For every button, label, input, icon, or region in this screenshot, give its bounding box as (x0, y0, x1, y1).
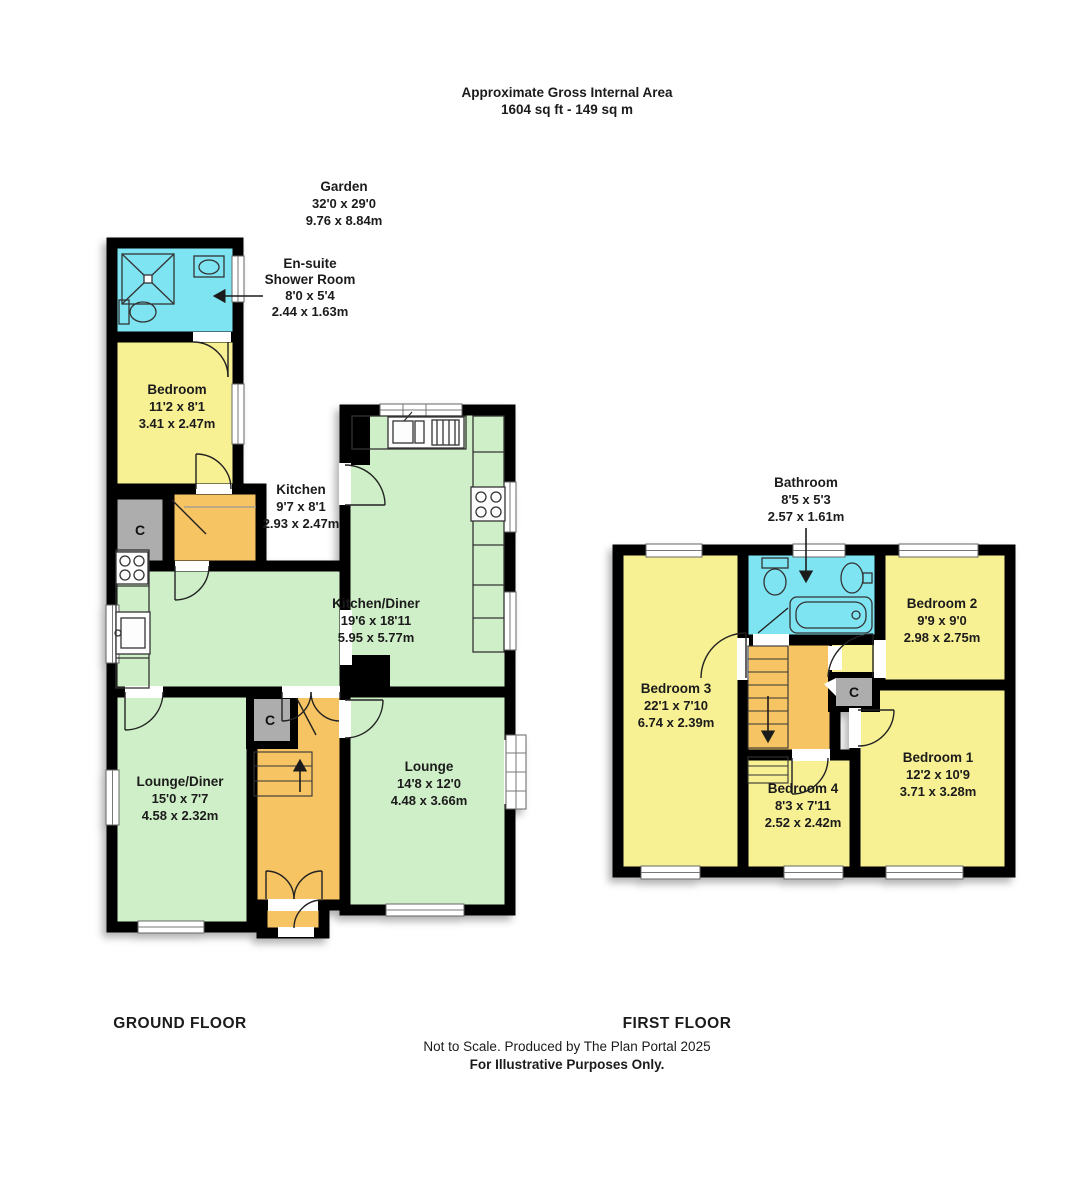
room-name: Lounge (405, 759, 454, 774)
room-name: Bedroom 3 (641, 681, 712, 696)
room-metric: 3.41 x 2.47m (139, 416, 216, 431)
window-icon (793, 544, 845, 557)
garden-label: Garden 32'0 x 29'0 9.76 x 8.84m (306, 179, 383, 228)
room-name: Bathroom (774, 475, 838, 490)
room-metric: 2.57 x 1.61m (768, 509, 845, 524)
room-name: Kitchen/Diner (332, 596, 421, 611)
floorplan-page: Approximate Gross Internal Area 1604 sq … (0, 0, 1089, 1200)
hall-gf (169, 489, 261, 566)
garden-imperial: 32'0 x 29'0 (312, 196, 376, 211)
disclaimer-line1: Not to Scale. Produced by The Plan Porta… (423, 1039, 710, 1054)
room-name: Bedroom 4 (768, 781, 839, 796)
bedroom-gf-label: Bedroom 11'2 x 8'1 3.41 x 2.47m (139, 382, 216, 431)
room-imperial: 19'6 x 18'11 (341, 613, 412, 628)
window-icon (106, 770, 119, 825)
room-imperial: 11'2 x 8'1 (149, 399, 205, 414)
bedroom1-label: Bedroom 1 12'2 x 10'9 3.71 x 3.28m (900, 750, 977, 799)
room-metric: 3.71 x 3.28m (900, 784, 977, 799)
room-imperial: 9'9 x 9'0 (917, 613, 967, 628)
room-name: Bedroom (147, 382, 206, 397)
bay-window-icon (504, 735, 526, 809)
room-name: Kitchen (276, 482, 326, 497)
window-icon (641, 866, 700, 879)
room-metric: 2.93 x 2.47m (263, 516, 340, 531)
window-icon (784, 866, 843, 879)
room-metric: 2.52 x 2.42m (765, 815, 842, 830)
window-icon (899, 544, 978, 557)
room-imperial: 14'8 x 12'0 (397, 776, 461, 791)
first-floor-title: FIRST FLOOR (623, 1015, 732, 1032)
sink-unit-icon (388, 412, 464, 448)
bedroom3-label: Bedroom 3 22'1 x 7'10 6.74 x 2.39m (638, 681, 715, 730)
window-icon (886, 866, 963, 879)
cupboard-label: C (849, 684, 859, 700)
room-imperial: 8'0 x 5'4 (285, 288, 335, 303)
room-metric: 2.44 x 1.63m (272, 304, 349, 319)
page-title-line1: Approximate Gross Internal Area (461, 85, 673, 100)
garden-name: Garden (320, 179, 367, 194)
room-imperial: 8'3 x 7'11 (775, 798, 831, 813)
room-ensuite (112, 243, 238, 337)
window-icon (386, 904, 464, 916)
room-imperial: 15'0 x 7'7 (152, 791, 209, 806)
window-icon (646, 544, 702, 557)
room-name: Bedroom 1 (903, 750, 974, 765)
room-imperial: 12'2 x 10'9 (906, 767, 970, 782)
hob-icon (471, 487, 505, 521)
window-icon (138, 921, 204, 933)
window-icon (232, 256, 244, 302)
bedroom4-label: Bedroom 4 8'3 x 7'11 2.52 x 2.42m (765, 781, 842, 830)
room-name: Shower Room (265, 272, 356, 287)
sink-unit-icon (115, 612, 150, 654)
ground-floor-title: GROUND FLOOR (113, 1015, 246, 1032)
window-icon (504, 482, 516, 532)
window-icon (380, 404, 462, 416)
hob-icon (116, 552, 148, 584)
room-bedroom4 (743, 755, 855, 872)
disclaimer-line2: For Illustrative Purposes Only. (470, 1057, 665, 1072)
window-icon (232, 384, 244, 444)
room-name: Lounge/Diner (137, 774, 225, 789)
room-imperial: 9'7 x 8'1 (276, 499, 326, 514)
garden-metric: 9.76 x 8.84m (306, 213, 383, 228)
room-metric: 5.95 x 5.77m (338, 630, 415, 645)
page-title-line2: 1604 sq ft - 149 sq m (501, 102, 633, 117)
kitchen-diner-label: Kitchen/Diner 19'6 x 18'11 5.95 x 5.77m (332, 596, 421, 645)
window-icon (504, 592, 516, 650)
room-metric: 2.98 x 2.75m (904, 630, 981, 645)
ground-floor-plan: C C (106, 243, 526, 937)
room-imperial: 22'1 x 7'10 (644, 698, 708, 713)
room-metric: 4.48 x 3.66m (391, 793, 468, 808)
room-name: Bedroom 2 (907, 596, 978, 611)
room-metric: 6.74 x 2.39m (638, 715, 715, 730)
room-imperial: 8'5 x 5'3 (781, 492, 831, 507)
floorplan-drawing: Approximate Gross Internal Area 1604 sq … (0, 0, 1089, 1200)
room-metric: 4.58 x 2.32m (142, 808, 219, 823)
cupboard-label: C (265, 712, 275, 728)
room-name: En-suite (283, 256, 337, 271)
cupboard-label: C (135, 522, 145, 538)
